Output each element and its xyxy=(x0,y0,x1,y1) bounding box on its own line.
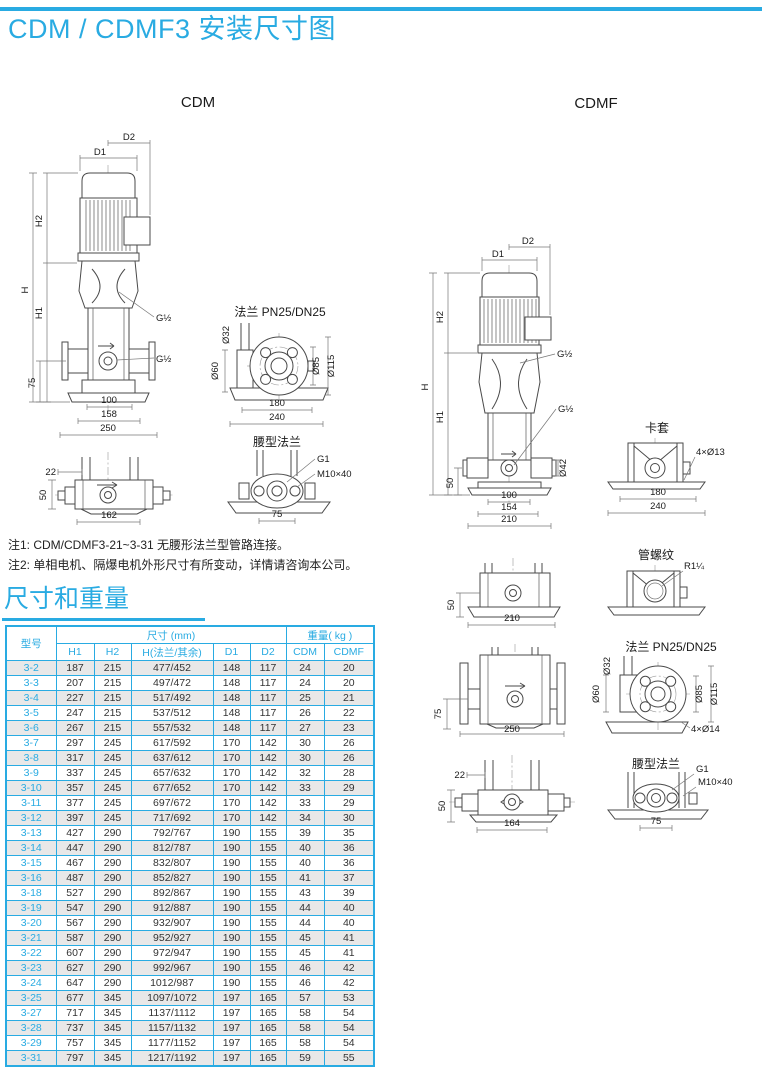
value-cell: 148 xyxy=(213,721,250,736)
value-cell: 357 xyxy=(56,781,94,796)
col-header-cdm: CDM xyxy=(286,644,324,661)
value-cell: 345 xyxy=(94,1021,131,1036)
cdmf-pipe-thread-detail: 管螺纹 R1¼ xyxy=(598,545,738,620)
value-cell: 29 xyxy=(324,781,374,796)
value-cell: 165 xyxy=(250,1021,286,1036)
value-cell: 297 xyxy=(56,736,94,751)
value-cell: 46 xyxy=(286,961,324,976)
value-cell: 757 xyxy=(56,1036,94,1051)
value-cell: 317 xyxy=(56,751,94,766)
value-cell: 148 xyxy=(213,661,250,676)
cdmf-view-75-250: 75 250 xyxy=(430,642,565,737)
model-cell: 3-8 xyxy=(6,751,56,766)
dim-label-210: 210 xyxy=(501,514,517,525)
value-cell: 58 xyxy=(286,1006,324,1021)
value-cell: 792/767 xyxy=(131,826,213,841)
value-cell: 148 xyxy=(213,706,250,721)
value-cell: 290 xyxy=(94,886,131,901)
value-cell: 190 xyxy=(213,946,250,961)
value-cell: 587 xyxy=(56,931,94,946)
note-1: 注1: CDM/CDMF3-21~3-31 无腰形法兰型管路连接。 xyxy=(8,536,289,553)
page-title: CDM / CDMF3 安装尺寸图 xyxy=(8,13,336,45)
value-cell: 26 xyxy=(286,706,324,721)
value-cell: 170 xyxy=(213,766,250,781)
col-header-model: 型号 xyxy=(6,626,56,661)
dim-label-d1: D1 xyxy=(94,147,106,158)
value-cell: 345 xyxy=(94,1006,131,1021)
value-cell: 197 xyxy=(213,1051,250,1067)
value-cell: 812/787 xyxy=(131,841,213,856)
value-cell: 852/827 xyxy=(131,871,213,886)
model-cell: 3-19 xyxy=(6,901,56,916)
value-cell: 892/867 xyxy=(131,886,213,901)
value-cell: 190 xyxy=(213,931,250,946)
value-cell: 30 xyxy=(286,751,324,766)
value-cell: 36 xyxy=(324,856,374,871)
dim-label-h1: H1 xyxy=(435,411,446,423)
dim-label-162: 162 xyxy=(101,510,117,521)
model-cell: 3-6 xyxy=(6,721,56,736)
cdmf-thread-outline xyxy=(608,565,705,615)
cdm-side-view: 22 50 162 xyxy=(25,447,195,532)
dimension-table: 型号 尺寸 (mm) 重量( kg ) H1 H2 H(法兰/其余) D1 D2… xyxy=(5,625,375,1067)
value-cell: 627 xyxy=(56,961,94,976)
value-cell: 35 xyxy=(324,826,374,841)
value-cell: 26 xyxy=(324,736,374,751)
value-cell: 27 xyxy=(286,721,324,736)
value-cell: 20 xyxy=(324,661,374,676)
value-cell: 697/672 xyxy=(131,796,213,811)
value-cell: 337 xyxy=(56,766,94,781)
value-cell: 29 xyxy=(324,796,374,811)
value-cell: 290 xyxy=(94,826,131,841)
value-cell: 57 xyxy=(286,991,324,1006)
table-row: 3-14447290812/7871901554036 xyxy=(6,841,374,856)
cdm-flange-detail: 法兰 PN25/DN25 Ø32 Ø60 Ø85 Ø115 180 240 xyxy=(205,303,355,431)
waist-flange-title: 腰型法兰 xyxy=(253,435,301,449)
value-cell: 290 xyxy=(94,961,131,976)
col-header-h-flange: H(法兰/其余) xyxy=(131,644,213,661)
value-cell: 197 xyxy=(213,1021,250,1036)
value-cell: 487 xyxy=(56,871,94,886)
value-cell: 197 xyxy=(213,1036,250,1051)
dim-label-g1: G1 xyxy=(696,764,709,775)
cdmf-view-c-outline xyxy=(460,644,565,730)
value-cell: 215 xyxy=(94,676,131,691)
dim-label-o85: Ø85 xyxy=(694,685,705,703)
value-cell: 142 xyxy=(250,736,286,751)
table-row: 3-3207215497/4721481172420 xyxy=(6,676,374,691)
col-header-cdmf: CDMF xyxy=(324,644,374,661)
value-cell: 28 xyxy=(324,766,374,781)
thread-label-port: G½ xyxy=(156,354,171,365)
value-cell: 190 xyxy=(213,976,250,991)
table-row: 3-11377245697/6721701423329 xyxy=(6,796,374,811)
dim-label-h: H xyxy=(420,383,431,390)
dim-label-o32: Ø32 xyxy=(221,326,232,344)
value-cell: 245 xyxy=(94,811,131,826)
table-row: 3-8317245637/6121701423026 xyxy=(6,751,374,766)
dim-label-o115: Ø115 xyxy=(326,355,337,378)
model-cell: 3-31 xyxy=(6,1051,56,1067)
value-cell: 345 xyxy=(94,1051,131,1067)
model-cell: 3-13 xyxy=(6,826,56,841)
value-cell: 477/452 xyxy=(131,661,213,676)
value-cell: 992/967 xyxy=(131,961,213,976)
value-cell: 197 xyxy=(213,991,250,1006)
dim-label-h2: H2 xyxy=(34,215,45,227)
dim-label-4xo14: 4×Ø14 xyxy=(691,724,720,735)
value-cell: 170 xyxy=(213,796,250,811)
value-cell: 717/692 xyxy=(131,811,213,826)
value-cell: 155 xyxy=(250,946,286,961)
model-cell: 3-14 xyxy=(6,841,56,856)
cdmf-waist-outline xyxy=(608,772,708,819)
value-cell: 142 xyxy=(250,781,286,796)
cdm-pump-outline xyxy=(62,165,155,413)
value-cell: 44 xyxy=(286,901,324,916)
dim-label-g1: G1 xyxy=(317,454,330,465)
dimension-table-body: 3-2187215477/45214811724203-3207215497/4… xyxy=(6,661,374,1067)
table-row: 3-23627290992/9671901554642 xyxy=(6,961,374,976)
table-row: 3-10357245677/6521701423329 xyxy=(6,781,374,796)
value-cell: 30 xyxy=(286,736,324,751)
value-cell: 290 xyxy=(94,976,131,991)
value-cell: 142 xyxy=(250,751,286,766)
cdmf-view-50-210: 50 210 xyxy=(438,555,563,630)
value-cell: 155 xyxy=(250,856,286,871)
value-cell: 41 xyxy=(324,946,374,961)
dim-label-50: 50 xyxy=(437,801,448,812)
model-cell: 3-15 xyxy=(6,856,56,871)
value-cell: 290 xyxy=(94,856,131,871)
dim-label-h: H xyxy=(20,286,31,293)
value-cell: 797 xyxy=(56,1051,94,1067)
value-cell: 46 xyxy=(286,976,324,991)
value-cell: 25 xyxy=(286,691,324,706)
dim-label-o32: Ø32 xyxy=(602,657,613,675)
table-row: 3-317973451217/11921971655955 xyxy=(6,1051,374,1067)
value-cell: 170 xyxy=(213,781,250,796)
value-cell: 190 xyxy=(213,901,250,916)
value-cell: 637/612 xyxy=(131,751,213,766)
value-cell: 148 xyxy=(213,691,250,706)
value-cell: 190 xyxy=(213,826,250,841)
cdmf-clamp-detail: 卡套 4×Ø13 180 240 xyxy=(600,418,740,518)
value-cell: 33 xyxy=(286,796,324,811)
value-cell: 245 xyxy=(94,736,131,751)
clamp-title: 卡套 xyxy=(645,421,669,435)
table-row: 3-12397245717/6921701423430 xyxy=(6,811,374,826)
value-cell: 245 xyxy=(94,781,131,796)
caption-cdmf: CDMF xyxy=(551,95,641,112)
value-cell: 647 xyxy=(56,976,94,991)
value-cell: 43 xyxy=(286,886,324,901)
value-cell: 41 xyxy=(286,871,324,886)
value-cell: 190 xyxy=(213,856,250,871)
value-cell: 40 xyxy=(286,841,324,856)
cdmf-view-d-outline xyxy=(449,755,575,826)
value-cell: 45 xyxy=(286,946,324,961)
value-cell: 1217/1192 xyxy=(131,1051,213,1067)
value-cell: 912/887 xyxy=(131,901,213,916)
value-cell: 34 xyxy=(286,811,324,826)
dim-label-o60: Ø60 xyxy=(210,362,221,380)
model-cell: 3-7 xyxy=(6,736,56,751)
value-cell: 972/947 xyxy=(131,946,213,961)
value-cell: 41 xyxy=(324,931,374,946)
value-cell: 267 xyxy=(56,721,94,736)
value-cell: 32 xyxy=(286,766,324,781)
cdm-main-drawing: D2 D1 H2 H H1 75 100 158 250 G½ G½ xyxy=(20,125,175,445)
value-cell: 247 xyxy=(56,706,94,721)
value-cell: 58 xyxy=(286,1036,324,1051)
value-cell: 30 xyxy=(324,811,374,826)
model-cell: 3-16 xyxy=(6,871,56,886)
waist-flange-title: 腰型法兰 xyxy=(632,757,680,771)
model-cell: 3-11 xyxy=(6,796,56,811)
value-cell: 42 xyxy=(324,961,374,976)
dim-label-50: 50 xyxy=(445,478,456,489)
value-cell: 165 xyxy=(250,1051,286,1067)
value-cell: 22 xyxy=(324,706,374,721)
model-cell: 3-9 xyxy=(6,766,56,781)
value-cell: 40 xyxy=(324,901,374,916)
flange-title: 法兰 PN25/DN25 xyxy=(625,640,717,654)
dim-label-180: 180 xyxy=(650,487,666,498)
model-cell: 3-23 xyxy=(6,961,56,976)
value-cell: 215 xyxy=(94,691,131,706)
cdmf-view-b-outline xyxy=(468,558,560,621)
table-row: 3-5247215537/5121481172622 xyxy=(6,706,374,721)
value-cell: 527 xyxy=(56,886,94,901)
model-cell: 3-22 xyxy=(6,946,56,961)
value-cell: 170 xyxy=(213,736,250,751)
table-row: 3-277173451137/11121971655854 xyxy=(6,1006,374,1021)
cdmf-main-drawing: D2 D1 H2 H H1 50 Ø42 100 154 210 G½ G½ xyxy=(425,237,575,537)
value-cell: 170 xyxy=(213,811,250,826)
value-cell: 245 xyxy=(94,766,131,781)
value-cell: 547 xyxy=(56,901,94,916)
value-cell: 557/532 xyxy=(131,721,213,736)
dim-label-o85: Ø85 xyxy=(311,357,322,375)
model-cell: 3-12 xyxy=(6,811,56,826)
cdm-waist-flange-detail: 腰型法兰 G1 M10×40 75 xyxy=(205,432,360,527)
value-cell: 40 xyxy=(286,856,324,871)
value-cell: 377 xyxy=(56,796,94,811)
model-cell: 3-24 xyxy=(6,976,56,991)
cdmf-flange-detail: 法兰 PN25/DN25 Ø32 Ø60 Ø85 Ø115 4×Ø14 xyxy=(588,638,738,743)
model-cell: 3-20 xyxy=(6,916,56,931)
cdmf-pump-outline xyxy=(463,265,556,505)
value-cell: 59 xyxy=(286,1051,324,1067)
value-cell: 155 xyxy=(250,826,286,841)
model-cell: 3-18 xyxy=(6,886,56,901)
value-cell: 190 xyxy=(213,841,250,856)
value-cell: 1012/987 xyxy=(131,976,213,991)
value-cell: 148 xyxy=(213,676,250,691)
value-cell: 54 xyxy=(324,1006,374,1021)
value-cell: 23 xyxy=(324,721,374,736)
value-cell: 40 xyxy=(324,916,374,931)
table-row: 3-16487290852/8271901554137 xyxy=(6,871,374,886)
value-cell: 952/927 xyxy=(131,931,213,946)
col-header-h1: H1 xyxy=(56,644,94,661)
value-cell: 37 xyxy=(324,871,374,886)
value-cell: 165 xyxy=(250,991,286,1006)
dim-label-75: 75 xyxy=(433,709,444,720)
value-cell: 245 xyxy=(94,751,131,766)
dim-label-22: 22 xyxy=(454,770,465,781)
col-header-d2: D2 xyxy=(250,644,286,661)
note-2: 注2: 单相电机、隔爆电机外形尺寸有所变动，详情请咨询本公司。 xyxy=(8,556,357,573)
dim-label-o60: Ø60 xyxy=(591,685,602,703)
dim-label-4xo13: 4×Ø13 xyxy=(696,447,725,458)
value-cell: 142 xyxy=(250,796,286,811)
dim-label-154: 154 xyxy=(501,502,517,513)
value-cell: 345 xyxy=(94,1036,131,1051)
top-rule xyxy=(0,7,762,11)
value-cell: 54 xyxy=(324,1036,374,1051)
dim-label-d2: D2 xyxy=(522,236,534,247)
value-cell: 290 xyxy=(94,901,131,916)
value-cell: 155 xyxy=(250,916,286,931)
dim-label-o115: Ø115 xyxy=(709,683,720,706)
model-cell: 3-10 xyxy=(6,781,56,796)
table-row: 3-20567290932/9071901554440 xyxy=(6,916,374,931)
value-cell: 290 xyxy=(94,931,131,946)
value-cell: 33 xyxy=(286,781,324,796)
flange-title: 法兰 PN25/DN25 xyxy=(234,305,326,319)
dim-label-180: 180 xyxy=(269,398,285,409)
cdmf-waist-flange-detail: 腰型法兰 G1 M10×40 75 xyxy=(590,748,740,833)
value-cell: 45 xyxy=(286,931,324,946)
value-cell: 155 xyxy=(250,886,286,901)
value-cell: 55 xyxy=(324,1051,374,1067)
dim-label-210: 210 xyxy=(504,613,520,624)
value-cell: 215 xyxy=(94,661,131,676)
dim-label-164: 164 xyxy=(504,818,520,829)
table-row: 3-256773451097/10721971655753 xyxy=(6,991,374,1006)
value-cell: 497/472 xyxy=(131,676,213,691)
value-cell: 117 xyxy=(250,661,286,676)
value-cell: 54 xyxy=(324,1021,374,1036)
value-cell: 24 xyxy=(286,661,324,676)
value-cell: 345 xyxy=(94,991,131,1006)
value-cell: 58 xyxy=(286,1021,324,1036)
dim-label-158: 158 xyxy=(101,409,117,420)
dim-label-d1: D1 xyxy=(492,249,504,260)
value-cell: 190 xyxy=(213,871,250,886)
table-row: 3-287373451157/11321971655854 xyxy=(6,1021,374,1036)
pipe-thread-title: 管螺纹 xyxy=(638,547,674,562)
value-cell: 117 xyxy=(250,676,286,691)
value-cell: 26 xyxy=(324,751,374,766)
dim-label-75: 75 xyxy=(272,509,283,520)
value-cell: 42 xyxy=(324,976,374,991)
value-cell: 190 xyxy=(213,961,250,976)
value-cell: 677 xyxy=(56,991,94,1006)
col-group-weight: 重量( kg ) xyxy=(286,626,374,644)
value-cell: 20 xyxy=(324,676,374,691)
table-row: 3-19547290912/8871901554440 xyxy=(6,901,374,916)
value-cell: 39 xyxy=(324,886,374,901)
value-cell: 537/512 xyxy=(131,706,213,721)
value-cell: 39 xyxy=(286,826,324,841)
value-cell: 36 xyxy=(324,841,374,856)
value-cell: 155 xyxy=(250,901,286,916)
cdmf-view-22-50-164: 22 50 164 xyxy=(435,750,570,835)
value-cell: 427 xyxy=(56,826,94,841)
value-cell: 215 xyxy=(94,721,131,736)
dim-label-250: 250 xyxy=(504,724,520,735)
value-cell: 932/907 xyxy=(131,916,213,931)
model-cell: 3-28 xyxy=(6,1021,56,1036)
value-cell: 190 xyxy=(213,916,250,931)
value-cell: 24 xyxy=(286,676,324,691)
dim-label-250: 250 xyxy=(100,423,116,434)
table-row: 3-22607290972/9471901554541 xyxy=(6,946,374,961)
value-cell: 1177/1152 xyxy=(131,1036,213,1051)
value-cell: 21 xyxy=(324,691,374,706)
model-cell: 3-3 xyxy=(6,676,56,691)
dim-label-240: 240 xyxy=(650,501,666,512)
value-cell: 467 xyxy=(56,856,94,871)
value-cell: 142 xyxy=(250,766,286,781)
value-cell: 1137/1112 xyxy=(131,1006,213,1021)
value-cell: 1157/1132 xyxy=(131,1021,213,1036)
model-cell: 3-4 xyxy=(6,691,56,706)
value-cell: 44 xyxy=(286,916,324,931)
value-cell: 53 xyxy=(324,991,374,1006)
value-cell: 187 xyxy=(56,661,94,676)
value-cell: 245 xyxy=(94,796,131,811)
col-group-dimensions: 尺寸 (mm) xyxy=(56,626,286,644)
value-cell: 117 xyxy=(250,706,286,721)
col-header-d1: D1 xyxy=(213,644,250,661)
table-row: 3-246472901012/9871901554642 xyxy=(6,976,374,991)
value-cell: 617/592 xyxy=(131,736,213,751)
table-row: 3-15467290832/8071901554036 xyxy=(6,856,374,871)
value-cell: 737 xyxy=(56,1021,94,1036)
value-cell: 1097/1072 xyxy=(131,991,213,1006)
value-cell: 517/492 xyxy=(131,691,213,706)
dim-label-50: 50 xyxy=(446,600,457,611)
table-row: 3-6267215557/5321481172723 xyxy=(6,721,374,736)
model-cell: 3-5 xyxy=(6,706,56,721)
table-row: 3-7297245617/5921701423026 xyxy=(6,736,374,751)
value-cell: 117 xyxy=(250,721,286,736)
value-cell: 155 xyxy=(250,871,286,886)
table-row: 3-13427290792/7671901553935 xyxy=(6,826,374,841)
value-cell: 657/632 xyxy=(131,766,213,781)
value-cell: 215 xyxy=(94,706,131,721)
dim-label-240: 240 xyxy=(269,412,285,423)
model-cell: 3-21 xyxy=(6,931,56,946)
value-cell: 207 xyxy=(56,676,94,691)
value-cell: 142 xyxy=(250,811,286,826)
value-cell: 290 xyxy=(94,916,131,931)
value-cell: 197 xyxy=(213,1006,250,1021)
thread-label-top: G½ xyxy=(156,313,171,324)
model-cell: 3-2 xyxy=(6,661,56,676)
value-cell: 397 xyxy=(56,811,94,826)
dim-label-r114: R1¼ xyxy=(684,561,705,572)
value-cell: 717 xyxy=(56,1006,94,1021)
model-cell: 3-27 xyxy=(6,1006,56,1021)
table-row: 3-4227215517/4921481172521 xyxy=(6,691,374,706)
section-title-underline xyxy=(2,618,205,621)
